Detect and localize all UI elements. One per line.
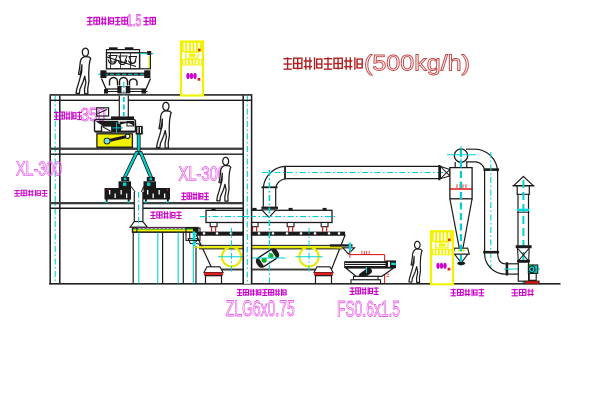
svg-text:ZLG6x0.75: ZLG6x0.75 bbox=[226, 296, 295, 321]
svg-text:(500kg/h): (500kg/h) bbox=[364, 51, 470, 76]
svg-text:XL-300: XL-300 bbox=[16, 159, 62, 181]
svg-text:FS0.6x1.5: FS0.6x1.5 bbox=[337, 297, 400, 322]
svg-text:1.5: 1.5 bbox=[127, 11, 142, 30]
